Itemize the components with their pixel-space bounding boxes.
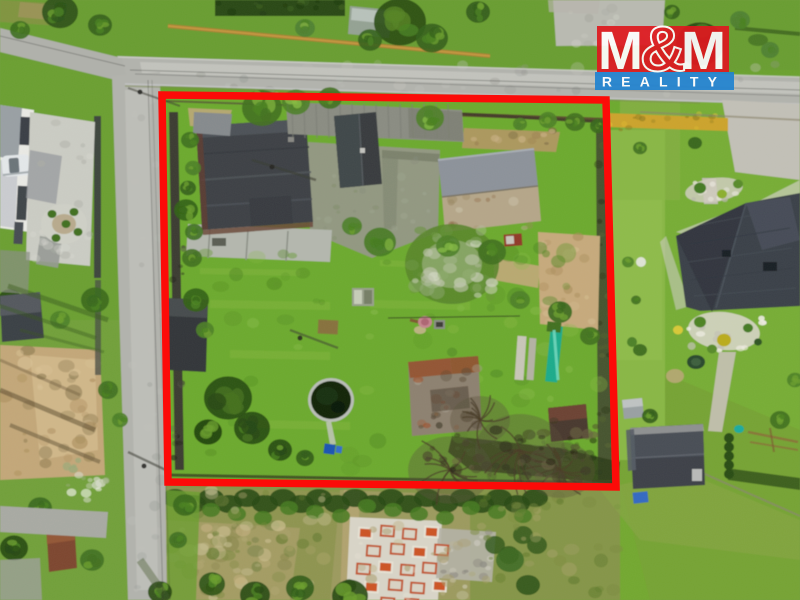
- svg-text:M: M: [598, 21, 643, 81]
- svg-text:REALITY: REALITY: [602, 74, 726, 90]
- svg-text:M: M: [681, 21, 726, 81]
